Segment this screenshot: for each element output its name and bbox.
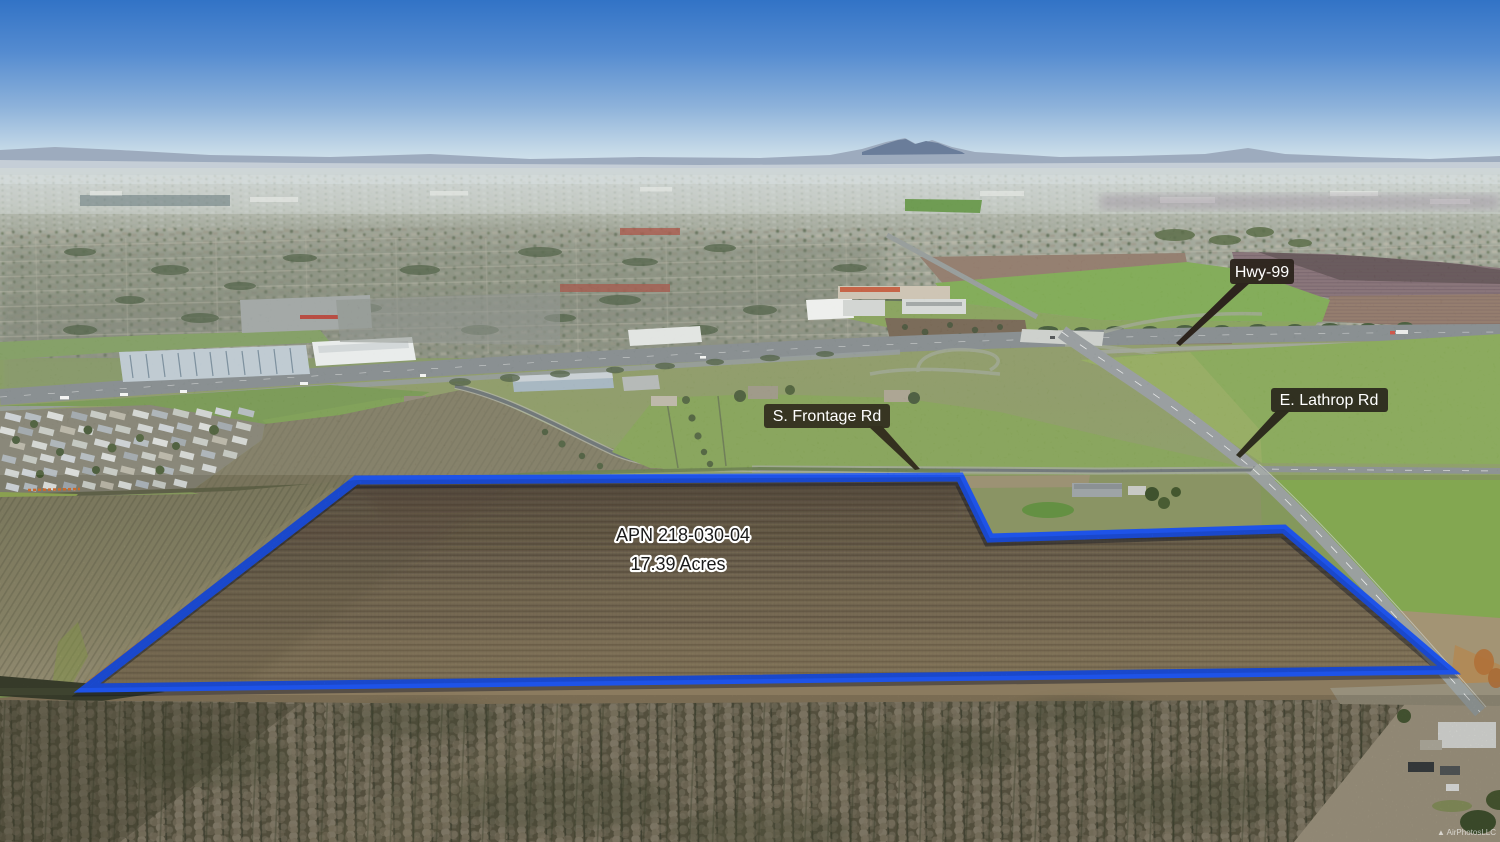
svg-text:Hwy-99: Hwy-99 bbox=[1235, 264, 1289, 281]
svg-text:▲ AirPhotosLLC: ▲ AirPhotosLLC bbox=[1437, 828, 1496, 837]
svg-text:E. Lathrop Rd: E. Lathrop Rd bbox=[1280, 392, 1379, 409]
svg-text:APN 218-030-04: APN 218-030-04 bbox=[616, 525, 750, 545]
svg-text:S. Frontage Rd: S. Frontage Rd bbox=[773, 408, 882, 425]
svg-text:17.39 Acres: 17.39 Acres bbox=[630, 554, 725, 574]
